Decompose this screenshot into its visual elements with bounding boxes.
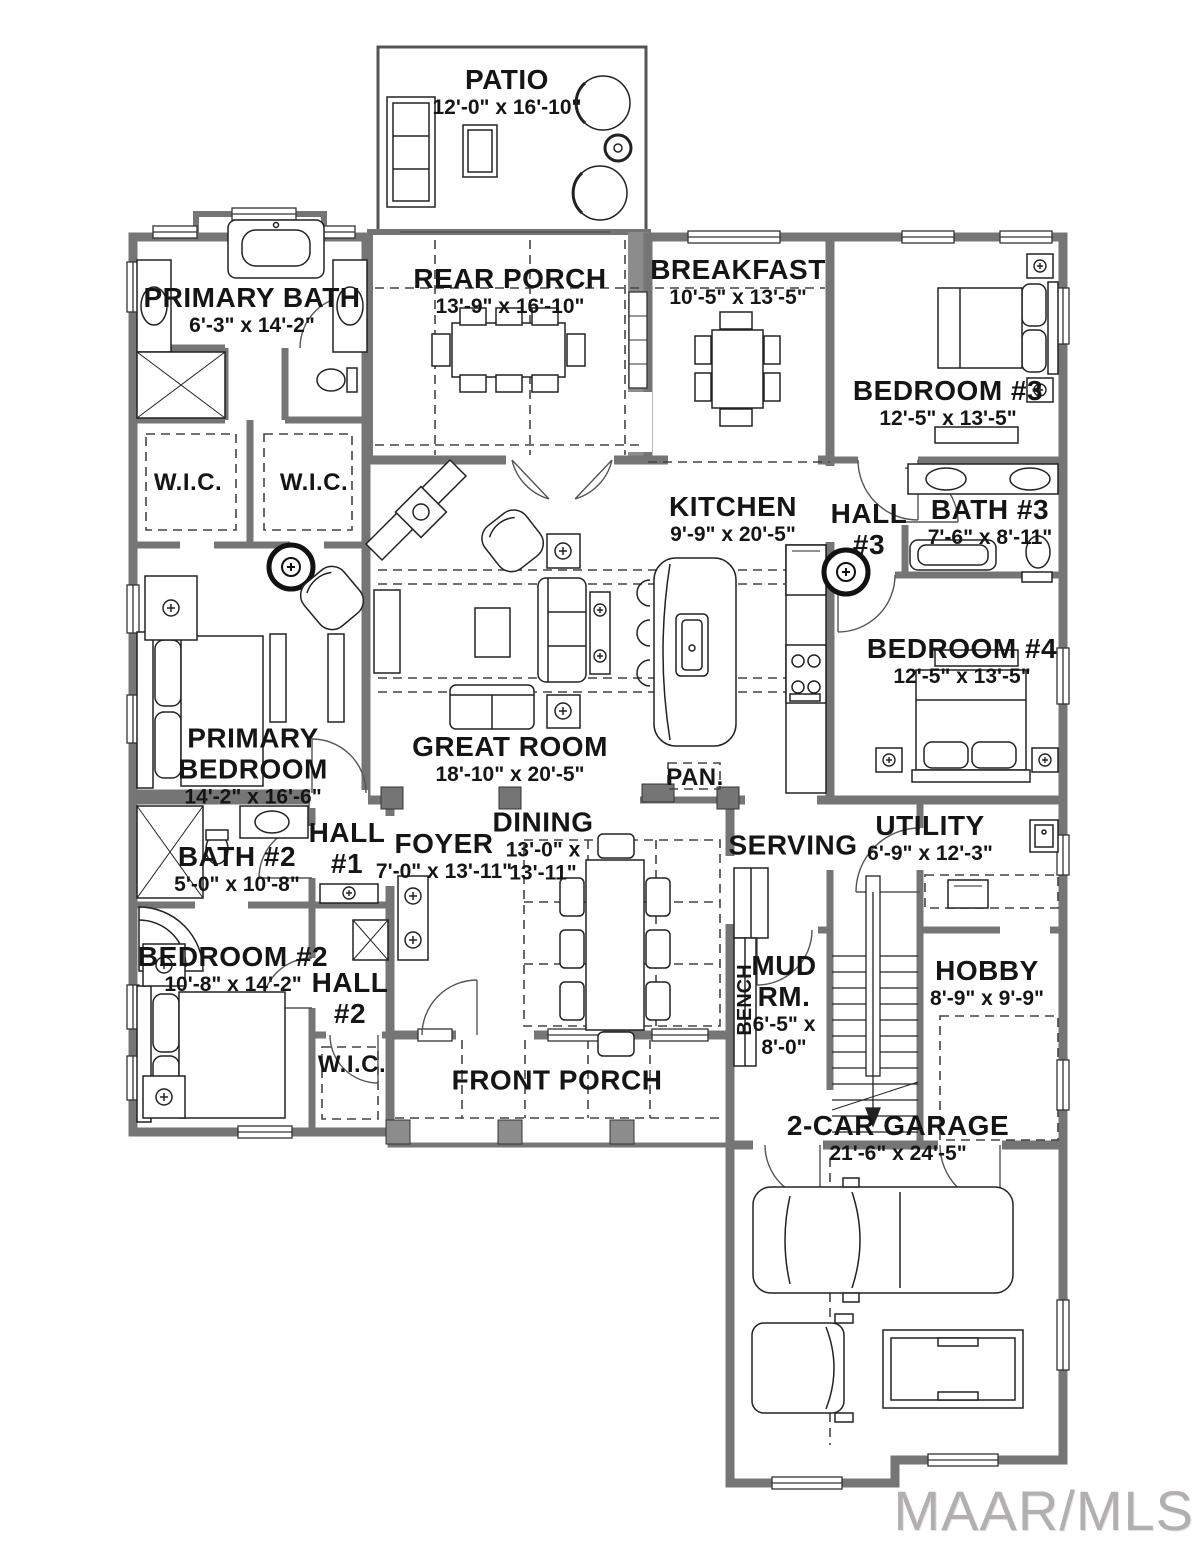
wic-left-label: W.I.C.: [154, 470, 222, 496]
mls-watermark: MAAR/MLS: [894, 1478, 1195, 1543]
bedroom2-label: BEDROOM #2 10'-8" x 14'-2": [138, 942, 328, 996]
wic-bottom-label: W.I.C.: [318, 1052, 386, 1078]
utility-label: UTILITY 6'-9" x 12'-3": [867, 811, 993, 865]
breakfast-label: BREAKFAST 10'-5" x 13'-5": [650, 255, 826, 309]
hall3-label: HALL #3: [831, 499, 908, 561]
hall1-label: HALL #1: [309, 818, 386, 880]
garage-label: 2-CAR GARAGE 21'-6" x 24'-5": [787, 1111, 1009, 1165]
front-porch-label: FRONT PORCH: [452, 1066, 663, 1097]
bath3-label: BATH #3 7'-6" x 8'-11": [928, 495, 1052, 549]
bedroom3-label: BEDROOM #3 12'-5" x 13'-5": [853, 376, 1043, 430]
kitchen-label: KITCHEN 9'-9" x 20'-5": [669, 492, 797, 546]
hall2-label: HALL #2: [312, 968, 389, 1030]
dining-label: DINING 13'-0" x 13'-11": [493, 808, 594, 885]
pantry-label: PAN.: [666, 765, 724, 791]
great-room-label: GREAT ROOM 18'-10" x 20'-5": [412, 732, 608, 786]
patio-label: PATIO 12'-0" x 16'-10": [433, 65, 582, 119]
bench-label: BENCH: [734, 964, 756, 1035]
hobby-label: HOBBY 8'-9" x 9'-9": [930, 956, 1044, 1010]
serving-label: SERVING: [728, 831, 857, 862]
rear-porch-label: REAR PORCH 13'-9" x 16'-10": [413, 264, 606, 318]
bedroom4-label: BEDROOM #4 12'-5" x 13'-5": [867, 634, 1057, 688]
wic-right-label: W.I.C.: [280, 470, 348, 496]
foyer-console: [398, 876, 428, 960]
mud-room-label: MUD RM. 6'-5" x 8'-0": [751, 951, 816, 1059]
primary-bath-label: PRIMARY BATH 6'-3" x 14'-2": [143, 283, 360, 337]
bath2-label: BATH #2 5'-0" x 10'-8": [174, 842, 300, 896]
serving-cabinet: [734, 868, 768, 938]
primary-bedroom-label: PRIMARY BEDROOM 14'-2" x 16'-6": [178, 724, 328, 809]
floor-plan: PATIO 12'-0" x 16'-10" REAR PORCH 13'-9"…: [0, 0, 1200, 1553]
